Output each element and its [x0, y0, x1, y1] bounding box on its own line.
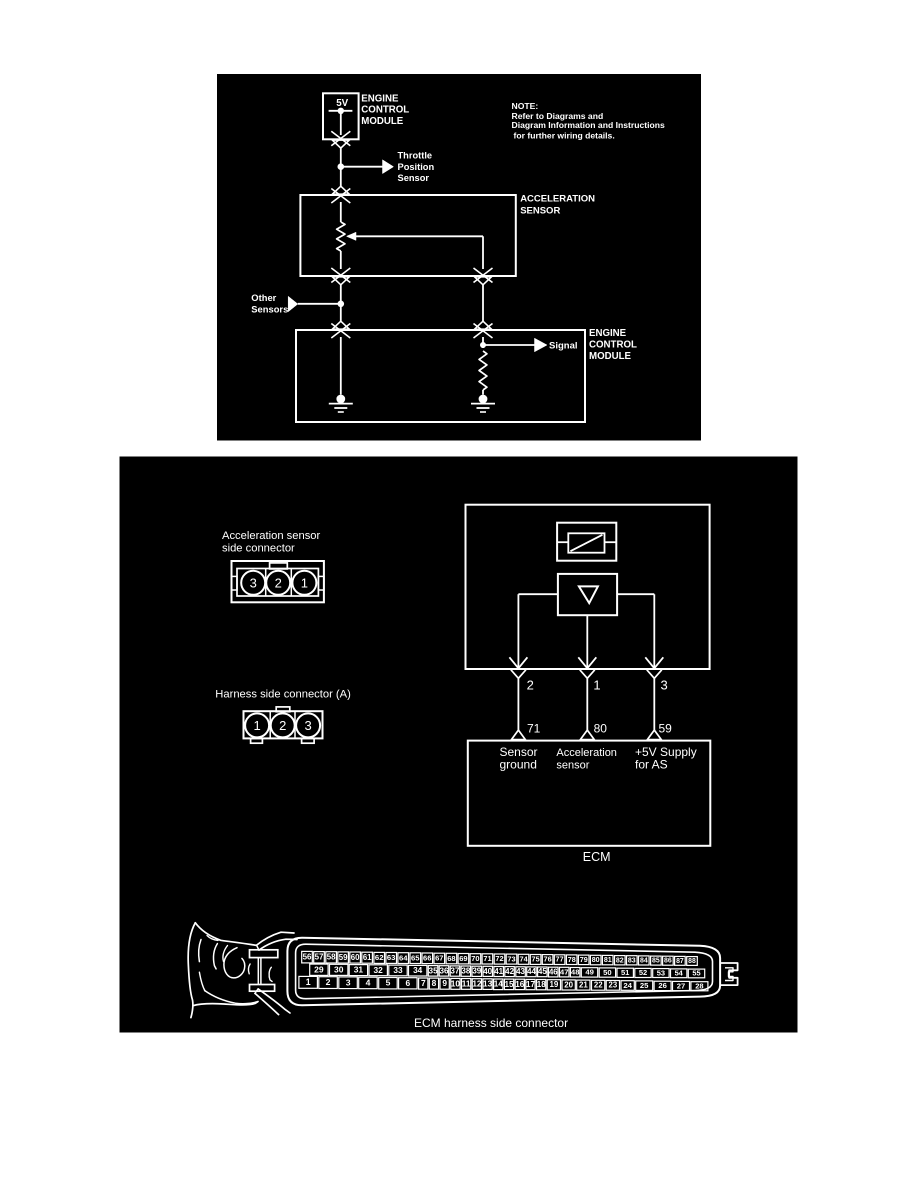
svg-text:CONTROL: CONTROL: [361, 105, 409, 116]
svg-text:9: 9: [442, 978, 447, 988]
svg-text:42: 42: [505, 967, 514, 976]
svg-text:47: 47: [560, 967, 569, 976]
svg-text:58: 58: [327, 953, 336, 962]
svg-text:Sensor: Sensor: [398, 173, 430, 183]
svg-text:for AS: for AS: [635, 758, 668, 772]
svg-text:Acceleration: Acceleration: [556, 747, 617, 759]
svg-text:73: 73: [507, 954, 515, 963]
svg-text:83: 83: [628, 957, 636, 964]
svg-text:23: 23: [609, 981, 618, 990]
svg-text:79: 79: [580, 956, 588, 964]
svg-text:1: 1: [306, 977, 311, 987]
svg-text:Other: Other: [251, 292, 276, 303]
svg-text:77: 77: [556, 955, 564, 964]
svg-text:1: 1: [253, 718, 260, 733]
svg-text:32: 32: [374, 965, 384, 975]
svg-text:74: 74: [520, 954, 529, 963]
svg-text:Throttle: Throttle: [398, 150, 433, 160]
svg-text:85: 85: [652, 958, 660, 965]
svg-text:10: 10: [451, 978, 461, 988]
svg-text:53: 53: [657, 968, 665, 977]
svg-text:81: 81: [604, 956, 612, 964]
svg-text:18: 18: [537, 980, 546, 989]
svg-text:MODULE: MODULE: [589, 351, 632, 362]
svg-text:6: 6: [406, 978, 411, 988]
svg-text:71: 71: [483, 954, 491, 963]
svg-text:66: 66: [423, 954, 431, 963]
svg-text:SENSOR: SENSOR: [520, 205, 560, 216]
svg-text:43: 43: [516, 967, 525, 976]
svg-text:13: 13: [483, 980, 493, 989]
svg-text:59: 59: [659, 721, 673, 735]
svg-text:56: 56: [303, 953, 312, 962]
svg-text:5: 5: [386, 978, 391, 988]
svg-text:44: 44: [527, 967, 536, 976]
svg-text:sensor: sensor: [556, 760, 589, 772]
svg-text:62: 62: [375, 953, 384, 962]
svg-text:45: 45: [538, 967, 547, 976]
svg-text:48: 48: [571, 968, 580, 977]
svg-text:86: 86: [664, 958, 672, 965]
svg-text:30: 30: [334, 964, 344, 974]
svg-text:72: 72: [495, 954, 503, 963]
svg-text:3: 3: [661, 678, 668, 693]
svg-text:5V: 5V: [336, 98, 348, 109]
svg-text:52: 52: [639, 968, 647, 977]
svg-text:3: 3: [304, 718, 311, 733]
svg-text:11: 11: [462, 979, 471, 988]
svg-text:84: 84: [640, 958, 648, 965]
svg-text:4: 4: [366, 978, 371, 988]
svg-text:88: 88: [688, 958, 696, 965]
svg-text:ACCELERATION: ACCELERATION: [520, 194, 595, 205]
svg-text:27: 27: [677, 981, 685, 990]
svg-text:63: 63: [387, 953, 396, 962]
svg-text:71: 71: [527, 721, 541, 735]
svg-text:67: 67: [435, 954, 443, 963]
svg-text:24: 24: [623, 981, 632, 990]
svg-text:55: 55: [692, 969, 700, 978]
svg-text:Position: Position: [398, 162, 435, 172]
svg-text:68: 68: [447, 954, 455, 963]
svg-text:80: 80: [592, 956, 600, 964]
svg-text:19: 19: [549, 980, 558, 989]
svg-text:59: 59: [339, 953, 348, 962]
svg-text:35: 35: [429, 966, 439, 975]
svg-text:Diagram Information and Instru: Diagram Information and Instructions: [512, 120, 665, 130]
svg-text:33: 33: [393, 965, 403, 975]
svg-text:87: 87: [676, 958, 684, 965]
svg-text:ENGINE: ENGINE: [361, 94, 399, 105]
svg-text:26: 26: [658, 981, 667, 990]
svg-text:Harness side connector (A): Harness side connector (A): [215, 688, 351, 700]
svg-text:82: 82: [616, 957, 624, 964]
svg-text:1: 1: [593, 678, 600, 693]
svg-text:2: 2: [275, 576, 282, 591]
svg-text:Acceleration sensor: Acceleration sensor: [222, 530, 321, 542]
svg-text:61: 61: [363, 953, 372, 962]
svg-text:28: 28: [695, 981, 703, 990]
svg-text:2: 2: [279, 718, 286, 733]
svg-text:51: 51: [621, 968, 629, 977]
svg-text:75: 75: [532, 955, 540, 964]
svg-text:MODULE: MODULE: [361, 116, 404, 127]
svg-text:7: 7: [421, 978, 426, 988]
svg-text:69: 69: [459, 954, 467, 963]
svg-text:29: 29: [314, 964, 324, 974]
svg-text:ground: ground: [500, 758, 537, 772]
svg-text:12: 12: [472, 980, 482, 989]
svg-text:36: 36: [439, 966, 449, 975]
svg-text:3: 3: [346, 977, 351, 987]
svg-text:80: 80: [594, 721, 608, 735]
svg-text:31: 31: [354, 965, 364, 975]
svg-text:Sensors: Sensors: [251, 304, 288, 315]
svg-text:60: 60: [351, 953, 360, 962]
svg-text:3: 3: [250, 576, 257, 591]
svg-text:ECM harness side connector: ECM harness side connector: [414, 1016, 568, 1030]
svg-text:for further wiring details.: for further wiring details.: [514, 131, 615, 141]
svg-text:65: 65: [411, 954, 420, 963]
svg-text:78: 78: [568, 955, 576, 964]
svg-text:38: 38: [461, 967, 470, 976]
svg-text:57: 57: [315, 953, 324, 962]
svg-text:17: 17: [526, 980, 535, 989]
svg-text:Signal: Signal: [549, 340, 578, 351]
svg-text:1: 1: [301, 576, 308, 591]
svg-text:8: 8: [432, 978, 437, 988]
svg-text:15: 15: [504, 980, 514, 989]
svg-text:41: 41: [494, 967, 503, 976]
svg-text:14: 14: [494, 980, 504, 989]
svg-text:2: 2: [326, 977, 331, 987]
svg-text:34: 34: [413, 966, 423, 975]
svg-text:2: 2: [527, 678, 534, 693]
svg-text:25: 25: [640, 981, 649, 990]
svg-text:16: 16: [515, 980, 525, 989]
svg-text:22: 22: [594, 981, 603, 990]
svg-text:21: 21: [579, 980, 588, 989]
svg-text:ECM: ECM: [583, 850, 611, 864]
svg-text:39: 39: [472, 967, 481, 976]
svg-text:side connector: side connector: [222, 543, 295, 555]
svg-text:54: 54: [675, 969, 684, 978]
svg-text:49: 49: [585, 968, 594, 977]
svg-text:46: 46: [549, 967, 558, 976]
svg-text:ENGINE: ENGINE: [589, 328, 627, 339]
svg-text:NOTE:: NOTE:: [512, 101, 539, 111]
svg-text:50: 50: [603, 968, 611, 977]
svg-text:37: 37: [450, 967, 460, 976]
svg-text:CONTROL: CONTROL: [589, 340, 637, 351]
svg-text:70: 70: [471, 954, 479, 963]
svg-text:40: 40: [483, 967, 492, 976]
svg-text:76: 76: [544, 955, 552, 964]
svg-text:64: 64: [399, 953, 408, 962]
svg-text:20: 20: [564, 980, 573, 989]
